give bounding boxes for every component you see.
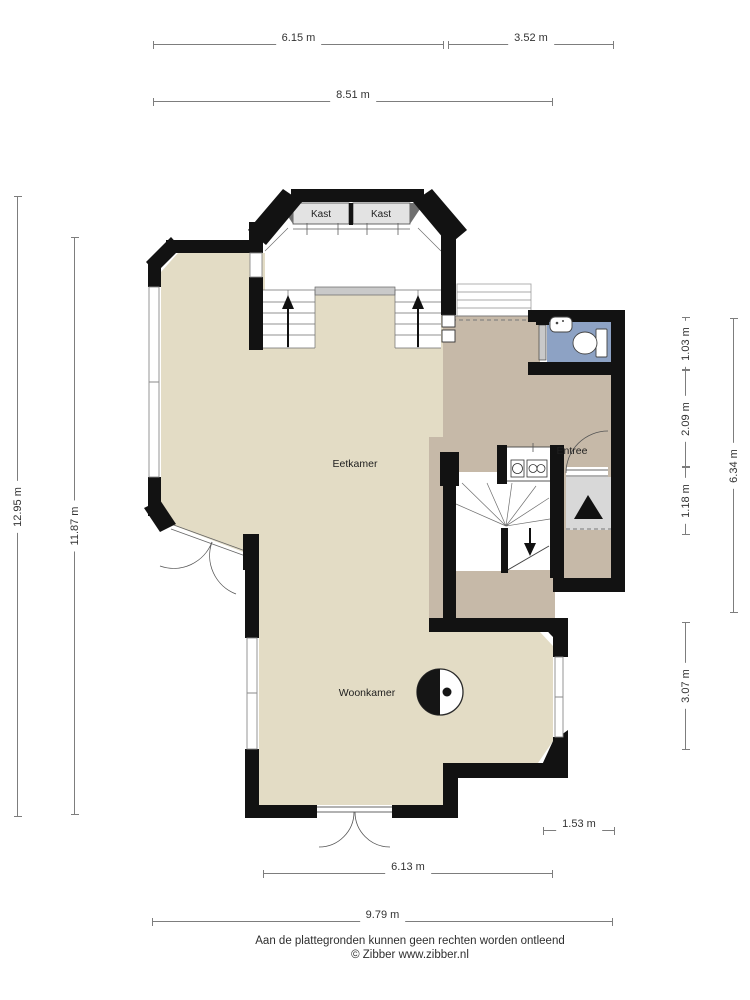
room-label-dining: Eetkamer [333,458,378,470]
dimension-label: 8.51 m [330,88,376,102]
sink-icon [550,317,572,332]
wood-stove-icon [417,669,463,715]
dimension-top-total: 8.51 m [153,101,553,102]
dimension-left-inner: 11.87 m [74,237,75,815]
window-hall-small [442,330,455,342]
dimension-bottom-porch: 1.53 m [543,830,615,831]
room-label-entry: Entree [557,445,588,457]
room-label-closet-left: Kast [311,209,331,220]
dimension-label: 1.03 m [679,321,693,367]
dimension-right-porch: 1.18 m [685,467,686,535]
footer-disclaimer: Aan de plattegronden kunnen geen rechten… [70,934,750,948]
dimension-right-hall: 2.09 m [685,370,686,467]
toilet-door [539,325,546,360]
dimension-label: 1.53 m [556,817,602,831]
dimension-left-outer: 12.95 m [17,196,18,817]
dimension-label: 3.52 m [508,31,554,45]
dimension-label: 9.79 m [360,908,406,922]
dimension-label: 3.07 m [679,663,693,709]
dimension-right-living: 3.07 m [685,622,686,750]
dimension-right-total: 6.34 m [733,318,734,613]
balustrade [315,287,395,295]
dimension-bottom-living: 6.13 m [263,873,553,874]
dimension-bottom-total: 9.79 m [152,921,613,922]
terrace-doors-sill [317,807,392,812]
room-label-closet-right: Kast [371,209,391,220]
meter-icon [511,460,524,477]
dimension-right-toilet: 1.03 m [685,317,686,370]
exterior-steps [457,284,531,316]
floorplan-page: Kast Kast Eetkamer Woonkamer Entree 6.15… [0,0,750,1000]
footer-copyright: © Zibber www.zibber.nl [70,948,750,962]
window-hall-small [442,315,455,327]
terrace-door-arc [355,812,390,847]
terrace-door-arc [319,812,354,847]
dimension-label: 11.87 m [68,501,82,552]
garden-door-arc [210,542,236,594]
dimension-top-left: 6.15 m [153,44,444,45]
dimension-label: 6.34 m [727,443,741,489]
dimension-label: 1.18 m [679,478,693,524]
window-living-left [247,638,257,749]
meter-cupboard [505,443,553,481]
toilet-icon [596,329,607,357]
dimension-label: 6.15 m [276,31,322,45]
dimension-label: 2.09 m [679,396,693,442]
floorplan-drawing: Kast Kast Eetkamer Woonkamer Entree [0,0,750,1000]
room-label-living: Woonkamer [339,687,396,699]
garden-door-arc [160,542,212,568]
window-upper-room [250,253,262,277]
dimension-top-right: 3.52 m [448,44,614,45]
dimension-label: 12.95 m [11,481,25,533]
dimension-label: 6.13 m [385,860,431,874]
